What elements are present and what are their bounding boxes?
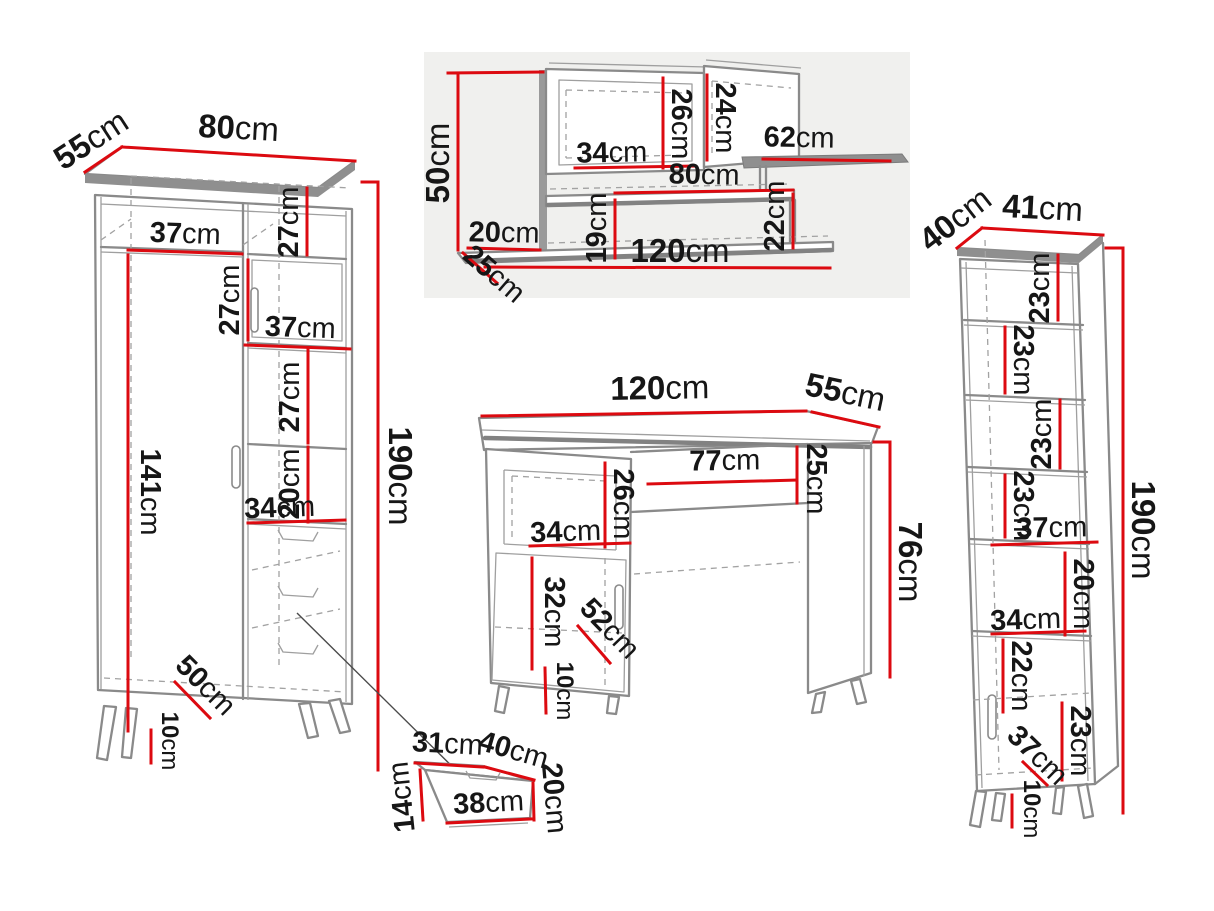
desk-dim-niche-width: 34cm bbox=[530, 515, 602, 549]
wardrobe-dim-height: 190cm bbox=[382, 426, 419, 525]
desk-dim-height: 76cm bbox=[892, 522, 929, 603]
wardrobe-dim-shelf-mid-width: 37cm bbox=[264, 311, 336, 345]
wall-shelf-dim-right-cabinet-height: 24cm bbox=[709, 83, 741, 154]
furniture-dimensions-diagram: 55cm 80cm 190cm 37cm 27cm 27cm 37cm 27cm… bbox=[0, 0, 1214, 911]
wardrobe-door-handle bbox=[251, 288, 258, 332]
wardrobe-left-door-handle bbox=[232, 446, 240, 488]
desk-dim-leg-height: 10cm bbox=[551, 662, 578, 721]
wall-shelf-dimline-top-shelf-width bbox=[763, 159, 890, 161]
wall-shelf-dim-right-gap-height: 22cm bbox=[759, 181, 791, 252]
wardrobe-dim-mid-door-section: 27cm bbox=[214, 265, 246, 336]
bookcase-door-handle bbox=[988, 695, 996, 739]
desk-dim-rail-height: 25cm bbox=[800, 444, 832, 515]
desk-leg bbox=[851, 679, 866, 704]
wardrobe-leg bbox=[97, 706, 116, 760]
drawer-dim-left-height: 14cm bbox=[382, 760, 421, 834]
wall-shelf-dim-top-shelf-width: 62cm bbox=[763, 121, 834, 154]
bookcase-dimline-height bbox=[1106, 248, 1123, 813]
desk-group: 120cm 55cm 76cm 77cm 25cm 26cm 34cm 32cm… bbox=[479, 365, 929, 720]
wardrobe-group: 55cm 80cm 190cm 37cm 27cm 27cm 37cm 27cm… bbox=[47, 102, 419, 770]
bookcase-leg bbox=[992, 793, 1005, 821]
wardrobe-dim-niche-width: 34cm bbox=[244, 491, 316, 525]
desk-dim-door-height: 32cm bbox=[538, 577, 570, 648]
bookcase-leg bbox=[970, 791, 986, 827]
wardrobe-dim-top-right-section: 27cm bbox=[273, 187, 305, 258]
bookcase-leg bbox=[1053, 787, 1064, 814]
bookcase-dim-niche-width: 34cm bbox=[990, 603, 1062, 637]
bookcase-dim-width: 41cm bbox=[1001, 187, 1084, 228]
wall-shelf-dim-total-width: 120cm bbox=[630, 232, 729, 269]
drawer-dimline-right-height bbox=[533, 783, 534, 820]
bookcase-leg bbox=[1078, 784, 1093, 818]
wardrobe-dim-shelf-top-width: 37cm bbox=[149, 217, 221, 251]
diagram-canvas: 55cm 80cm 190cm 37cm 27cm 27cm 37cm 27cm… bbox=[0, 0, 1214, 911]
desk-dim-depth: 55cm bbox=[802, 365, 889, 418]
wall-shelf-dim-height: 50cm bbox=[419, 123, 456, 204]
drawer-dim-right-height: 20cm bbox=[535, 761, 573, 834]
wardrobe-dim-lower-right-section: 27cm bbox=[274, 362, 306, 433]
wardrobe-dim-width: 80cm bbox=[197, 107, 280, 148]
desk-dimline-knee-width bbox=[648, 480, 797, 484]
desk-leg bbox=[495, 686, 509, 713]
desk-leg bbox=[812, 692, 825, 713]
drawer-dim-top-width: 31cm bbox=[411, 726, 484, 762]
wardrobe-dim-left-section-height: 141cm bbox=[134, 448, 166, 535]
bookcase-dim-leg-height: 10cm bbox=[1018, 780, 1045, 839]
wall-shelf-dim-cabinet-height: 26cm bbox=[665, 89, 697, 160]
bookcase-group: 40cm 41cm 190cm 23cm 23cm 23cm 23cm 37cm… bbox=[912, 180, 1162, 839]
wall-shelf-dim-left-gap-height: 19cm bbox=[581, 193, 613, 264]
bookcase-dim-section1: 23cm bbox=[1024, 253, 1056, 324]
bookcase-dim-height: 190cm bbox=[1125, 480, 1162, 579]
bookcase-dim-niche-height: 20cm bbox=[1067, 559, 1099, 630]
wardrobe-leg bbox=[299, 703, 318, 738]
bookcase-dim-shelf-width: 37cm bbox=[1016, 511, 1087, 544]
drawer-dimline-left-height bbox=[420, 770, 423, 820]
bookcase-dim-section3: 23cm bbox=[1026, 399, 1058, 470]
bookcase-dim-below-niche: 22cm bbox=[1005, 641, 1037, 712]
desk-dim-knee-width: 77cm bbox=[689, 444, 760, 477]
wardrobe-dimline-height bbox=[362, 182, 378, 770]
drawer-dim-front-width: 38cm bbox=[452, 785, 525, 821]
wall-shelf-dim-middle-shelf-width: 80cm bbox=[668, 158, 739, 191]
desk-dim-width: 120cm bbox=[610, 368, 710, 407]
desk-dimline-leg-height bbox=[545, 668, 546, 713]
desk-dim-niche-height: 26cm bbox=[607, 469, 639, 540]
bookcase-dim-section2: 23cm bbox=[1007, 325, 1039, 396]
desk-dimline-height bbox=[874, 442, 890, 677]
wall-shelf-dim-cabinet-width: 34cm bbox=[576, 136, 647, 169]
desk-leg bbox=[607, 696, 619, 714]
wardrobe-dim-leg-height: 10cm bbox=[156, 712, 183, 771]
